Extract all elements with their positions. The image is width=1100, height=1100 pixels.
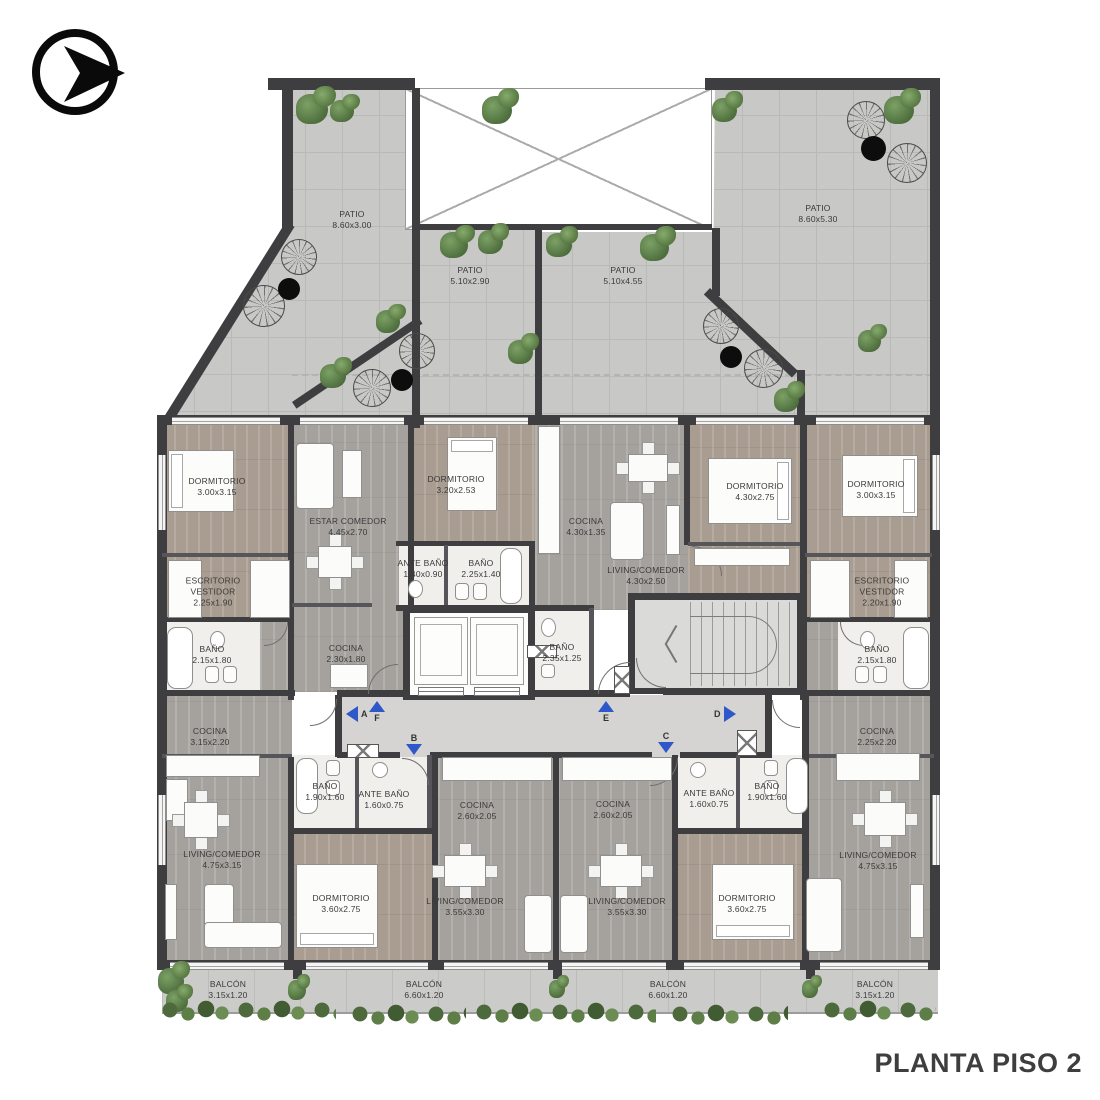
plant — [858, 330, 881, 352]
plant — [288, 980, 306, 1000]
arrow-left-icon — [346, 706, 358, 722]
room-label: ANTE BAÑO1.60x0.75 — [359, 789, 410, 811]
elevator-door — [418, 687, 464, 696]
room-label: LIVING/COMEDOR4.30x2.50 — [607, 565, 684, 587]
patio-table — [861, 136, 886, 161]
bathtub — [167, 627, 193, 689]
wall-segment — [680, 752, 772, 758]
room-label: COCINA2.30x1.80 — [326, 643, 365, 665]
kitchen-counter — [562, 757, 672, 781]
marker-letter: F — [374, 713, 380, 723]
room-label: BAÑO1.90x1.60 — [747, 781, 786, 803]
room-label-patio-mid2: PATIO5.10x4.55 — [603, 265, 642, 287]
window — [684, 962, 800, 970]
plant — [774, 388, 799, 412]
plant — [440, 232, 468, 258]
patio-table — [391, 369, 413, 391]
plant — [296, 94, 328, 124]
sink — [455, 583, 469, 600]
wall-segment — [292, 603, 372, 607]
room-label: BALCÓN3.15x1.20 — [208, 979, 247, 1001]
duct-box — [347, 744, 379, 758]
hedge — [668, 1002, 788, 1028]
sofa — [806, 878, 842, 952]
arrow-down-icon — [658, 742, 674, 753]
hedge — [472, 1000, 656, 1026]
plant — [546, 233, 572, 257]
window — [424, 417, 528, 425]
plant — [712, 98, 737, 122]
corridor-marker-b: B — [406, 733, 422, 755]
door-arc — [310, 699, 337, 726]
sink — [541, 664, 555, 678]
room-label-patio-left: PATIO8.60x3.00 — [332, 209, 371, 231]
wall-segment — [589, 608, 594, 695]
corridor-marker-d: D — [714, 706, 736, 722]
corridor — [337, 695, 772, 757]
sofa — [610, 502, 644, 560]
room-label: COCINA2.60x2.05 — [593, 799, 632, 821]
window — [562, 962, 666, 970]
wall-segment — [292, 828, 438, 834]
room-label-patio-right: PATIO8.60x5.30 — [798, 203, 837, 225]
plant — [482, 96, 512, 124]
room-label: LIVING/COMEDOR3.55x3.30 — [588, 896, 665, 918]
wall-segment — [396, 605, 536, 611]
room-label: DORMITORIO3.00x3.15 — [188, 476, 245, 498]
hedge — [348, 1002, 466, 1028]
room-label-patio-mid1: PATIO5.10x2.90 — [450, 265, 489, 287]
room-label: BAÑO2.15x1.80 — [857, 644, 896, 666]
sofa — [524, 895, 552, 953]
wall-segment — [529, 545, 535, 610]
patio-table — [278, 278, 300, 300]
wardrobe — [694, 548, 790, 566]
room-label: LIVING/COMEDOR4.75x3.15 — [839, 850, 916, 872]
window — [158, 455, 166, 530]
room-label: LIVING/COMEDOR3.55x3.30 — [426, 896, 503, 918]
dining-table — [852, 790, 918, 848]
wardrobe — [810, 560, 850, 618]
toilet — [690, 762, 706, 778]
parasol-plant-icon — [847, 101, 885, 139]
room-hall-r — [805, 620, 838, 695]
elevator-car — [414, 617, 468, 685]
sink — [855, 666, 869, 683]
wall-segment — [712, 228, 720, 296]
dining-table — [306, 534, 364, 590]
wall-segment — [688, 542, 802, 546]
kitchen-counter — [442, 757, 552, 781]
window — [932, 795, 940, 865]
room-label: ANTE BAÑO1.60x0.75 — [684, 788, 735, 810]
wall-segment — [396, 541, 535, 546]
plant — [508, 340, 533, 364]
patio-table — [720, 346, 742, 368]
parasol-plant-icon — [703, 308, 739, 344]
tv-unit — [165, 884, 177, 940]
kitchen-counter — [166, 755, 260, 777]
room-label: ESCRITORIO VESTIDOR2.25x1.90 — [180, 575, 246, 608]
wall-segment — [805, 553, 932, 557]
window — [560, 417, 678, 425]
wall-segment — [663, 688, 804, 695]
sink — [473, 583, 487, 600]
wall-segment — [553, 757, 559, 965]
sink — [223, 666, 237, 683]
toilet — [372, 762, 388, 778]
marker-letter: E — [603, 713, 609, 723]
tv-unit — [342, 450, 362, 498]
room-label: BAÑO2.15x1.80 — [192, 644, 231, 666]
room-label: ESCRITORIO VESTIDOR2.20x1.90 — [849, 575, 915, 608]
projection-dashed-line — [292, 374, 932, 376]
parasol-plant-icon — [281, 239, 317, 275]
wall-segment — [162, 553, 292, 557]
bathtub — [786, 758, 808, 814]
tv-unit — [910, 884, 924, 938]
sofa — [560, 895, 588, 953]
wall-segment — [672, 755, 678, 965]
plant — [640, 234, 669, 261]
wall-segment — [282, 78, 293, 228]
wall-segment — [530, 605, 594, 611]
wall-segment — [800, 420, 807, 700]
wall-segment — [765, 695, 772, 757]
room-label: COCINA3.15x2.20 — [190, 726, 229, 748]
room-label: BAÑO2.35x1.25 — [542, 642, 581, 664]
room-label: COCINA4.30x1.35 — [566, 516, 605, 538]
window — [172, 417, 280, 425]
sink — [873, 666, 887, 683]
room-label: DORMITORIO4.30x2.75 — [726, 481, 783, 503]
bathtub — [500, 548, 522, 604]
room-label: BALCÓN6.60x1.20 — [404, 979, 443, 1001]
room-label: ANTE BAÑO1.40x0.90 — [398, 558, 449, 580]
kitchen-counter — [538, 426, 560, 554]
room-label: BALCÓN6.60x1.20 — [648, 979, 687, 1001]
marker-letter: C — [663, 731, 670, 741]
room-label: DORMITORIO3.60x2.75 — [312, 893, 369, 915]
plant — [802, 980, 818, 998]
stair-path — [690, 616, 777, 674]
wall-segment — [805, 690, 934, 696]
elevator-car — [470, 617, 524, 685]
window — [932, 455, 940, 530]
room-label: DORMITORIO3.20x2.53 — [427, 474, 484, 496]
window — [306, 962, 428, 970]
wall-segment — [535, 228, 542, 425]
sink — [764, 760, 778, 776]
marker-letter: D — [714, 709, 721, 719]
kitchen-counter — [330, 664, 368, 688]
kitchen-counter — [836, 753, 920, 781]
dining-table — [616, 442, 680, 494]
arrow-up-icon — [369, 701, 385, 712]
wall-segment — [705, 78, 938, 90]
arrow-right-icon — [724, 706, 736, 722]
room-label: COCINA2.60x2.05 — [457, 800, 496, 822]
room-label: ESTAR COMEDOR4.45x2.70 — [309, 516, 386, 538]
floor-plan-canvas: PATIO8.60x3.00 PATIO5.10x2.90 PATIO5.10x… — [0, 0, 1100, 1100]
plant — [376, 310, 400, 333]
wall-segment — [736, 755, 740, 833]
wall-segment — [162, 690, 295, 696]
dining-table — [588, 843, 654, 899]
room-patio-mid1 — [412, 228, 542, 425]
wall-segment — [412, 88, 420, 428]
parasol-plant-icon — [353, 369, 391, 407]
sink — [326, 760, 340, 776]
parasol-plant-icon — [887, 143, 927, 183]
marker-letter: A — [361, 709, 368, 719]
duct-box — [737, 730, 757, 756]
plant — [330, 100, 354, 122]
room-label: DORMITORIO3.60x2.75 — [718, 893, 775, 915]
window — [820, 962, 928, 970]
window — [816, 417, 924, 425]
window — [696, 417, 794, 425]
dining-table — [432, 843, 498, 899]
room-label: BAÑO1.90x1.60 — [305, 781, 344, 803]
parasol-plant-icon — [399, 333, 435, 369]
sofa — [296, 443, 334, 509]
wardrobe — [250, 560, 290, 618]
logo-arrow-icon — [30, 26, 126, 120]
plant — [478, 230, 503, 254]
room-label: BALCÓN3.15x1.20 — [855, 979, 894, 1001]
door-arc — [772, 700, 800, 728]
plant — [884, 96, 914, 124]
hedge — [158, 998, 336, 1024]
toilet — [541, 618, 556, 637]
corridor-marker-c: C — [658, 731, 674, 753]
window — [444, 962, 548, 970]
sink — [205, 666, 219, 683]
room-label: LIVING/COMEDOR4.75x3.15 — [183, 849, 260, 871]
plant — [549, 980, 565, 998]
toilet — [408, 580, 423, 598]
hedge — [820, 998, 936, 1024]
wall-segment — [675, 828, 805, 834]
room-label: DORMITORIO3.00x3.15 — [847, 479, 904, 501]
tv-unit — [666, 505, 680, 555]
dining-table — [172, 790, 230, 850]
corridor-marker-f: F — [369, 701, 385, 723]
bathtub — [903, 627, 929, 689]
arrow-down-icon — [406, 744, 422, 755]
page-title: PLANTA PISO 2 — [874, 1048, 1082, 1079]
room-label: BAÑO2.25x1.40 — [461, 558, 500, 580]
arrow-up-icon — [598, 701, 614, 712]
duct-box — [614, 666, 630, 694]
void-shaft — [405, 88, 712, 230]
plant — [320, 364, 346, 388]
elevator-door — [474, 687, 520, 696]
sofa — [204, 922, 282, 948]
window — [300, 417, 404, 425]
corridor-marker-a: A — [346, 706, 368, 722]
wall-segment — [684, 420, 690, 545]
wall-segment — [288, 757, 294, 965]
window — [158, 795, 166, 865]
marker-letter: B — [411, 733, 418, 743]
room-label: COCINA2.25x2.20 — [857, 726, 896, 748]
corridor-marker-e: E — [598, 701, 614, 723]
parasol-plant-icon — [744, 349, 783, 388]
